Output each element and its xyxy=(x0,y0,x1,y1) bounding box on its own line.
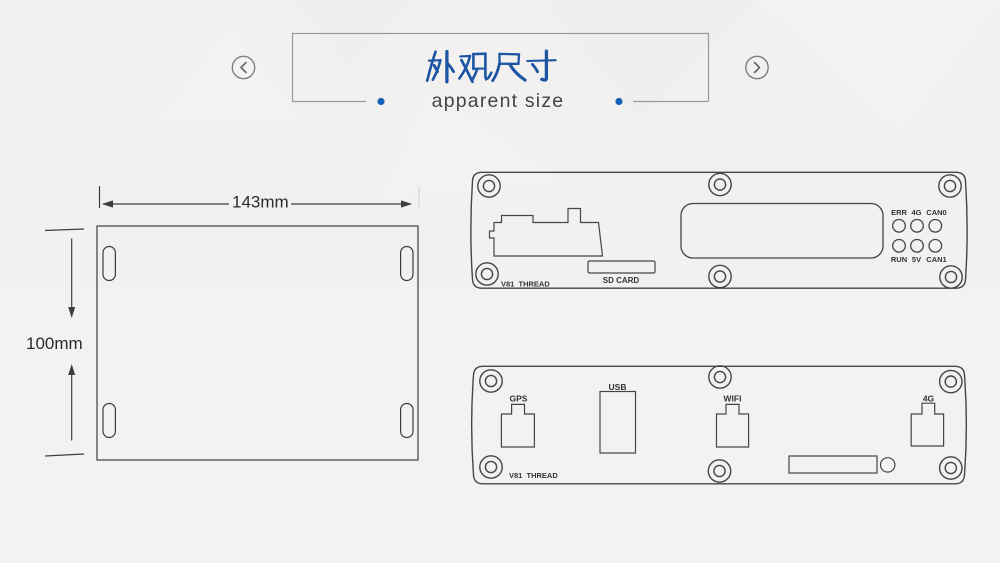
svg-text:ERR: ERR xyxy=(891,208,907,217)
svg-text:WIFI: WIFI xyxy=(724,394,742,404)
svg-text:RUN: RUN xyxy=(891,255,907,264)
svg-text:4G: 4G xyxy=(911,208,921,217)
svg-text:GPS: GPS xyxy=(510,394,528,404)
svg-text:5V: 5V xyxy=(912,255,921,264)
svg-text:100mm: 100mm xyxy=(26,334,83,353)
svg-text:V81 THREAD: V81 THREAD xyxy=(509,471,558,480)
svg-text:143mm: 143mm xyxy=(232,193,289,212)
svg-text:CAN1: CAN1 xyxy=(926,255,946,264)
svg-text:apparent size: apparent size xyxy=(432,90,565,112)
svg-text:USB: USB xyxy=(609,382,627,392)
svg-text:4G: 4G xyxy=(923,394,935,404)
svg-text:CAN0: CAN0 xyxy=(926,208,946,217)
svg-text:SD CARD: SD CARD xyxy=(603,276,640,285)
svg-text:V81 THREAD: V81 THREAD xyxy=(501,280,550,289)
